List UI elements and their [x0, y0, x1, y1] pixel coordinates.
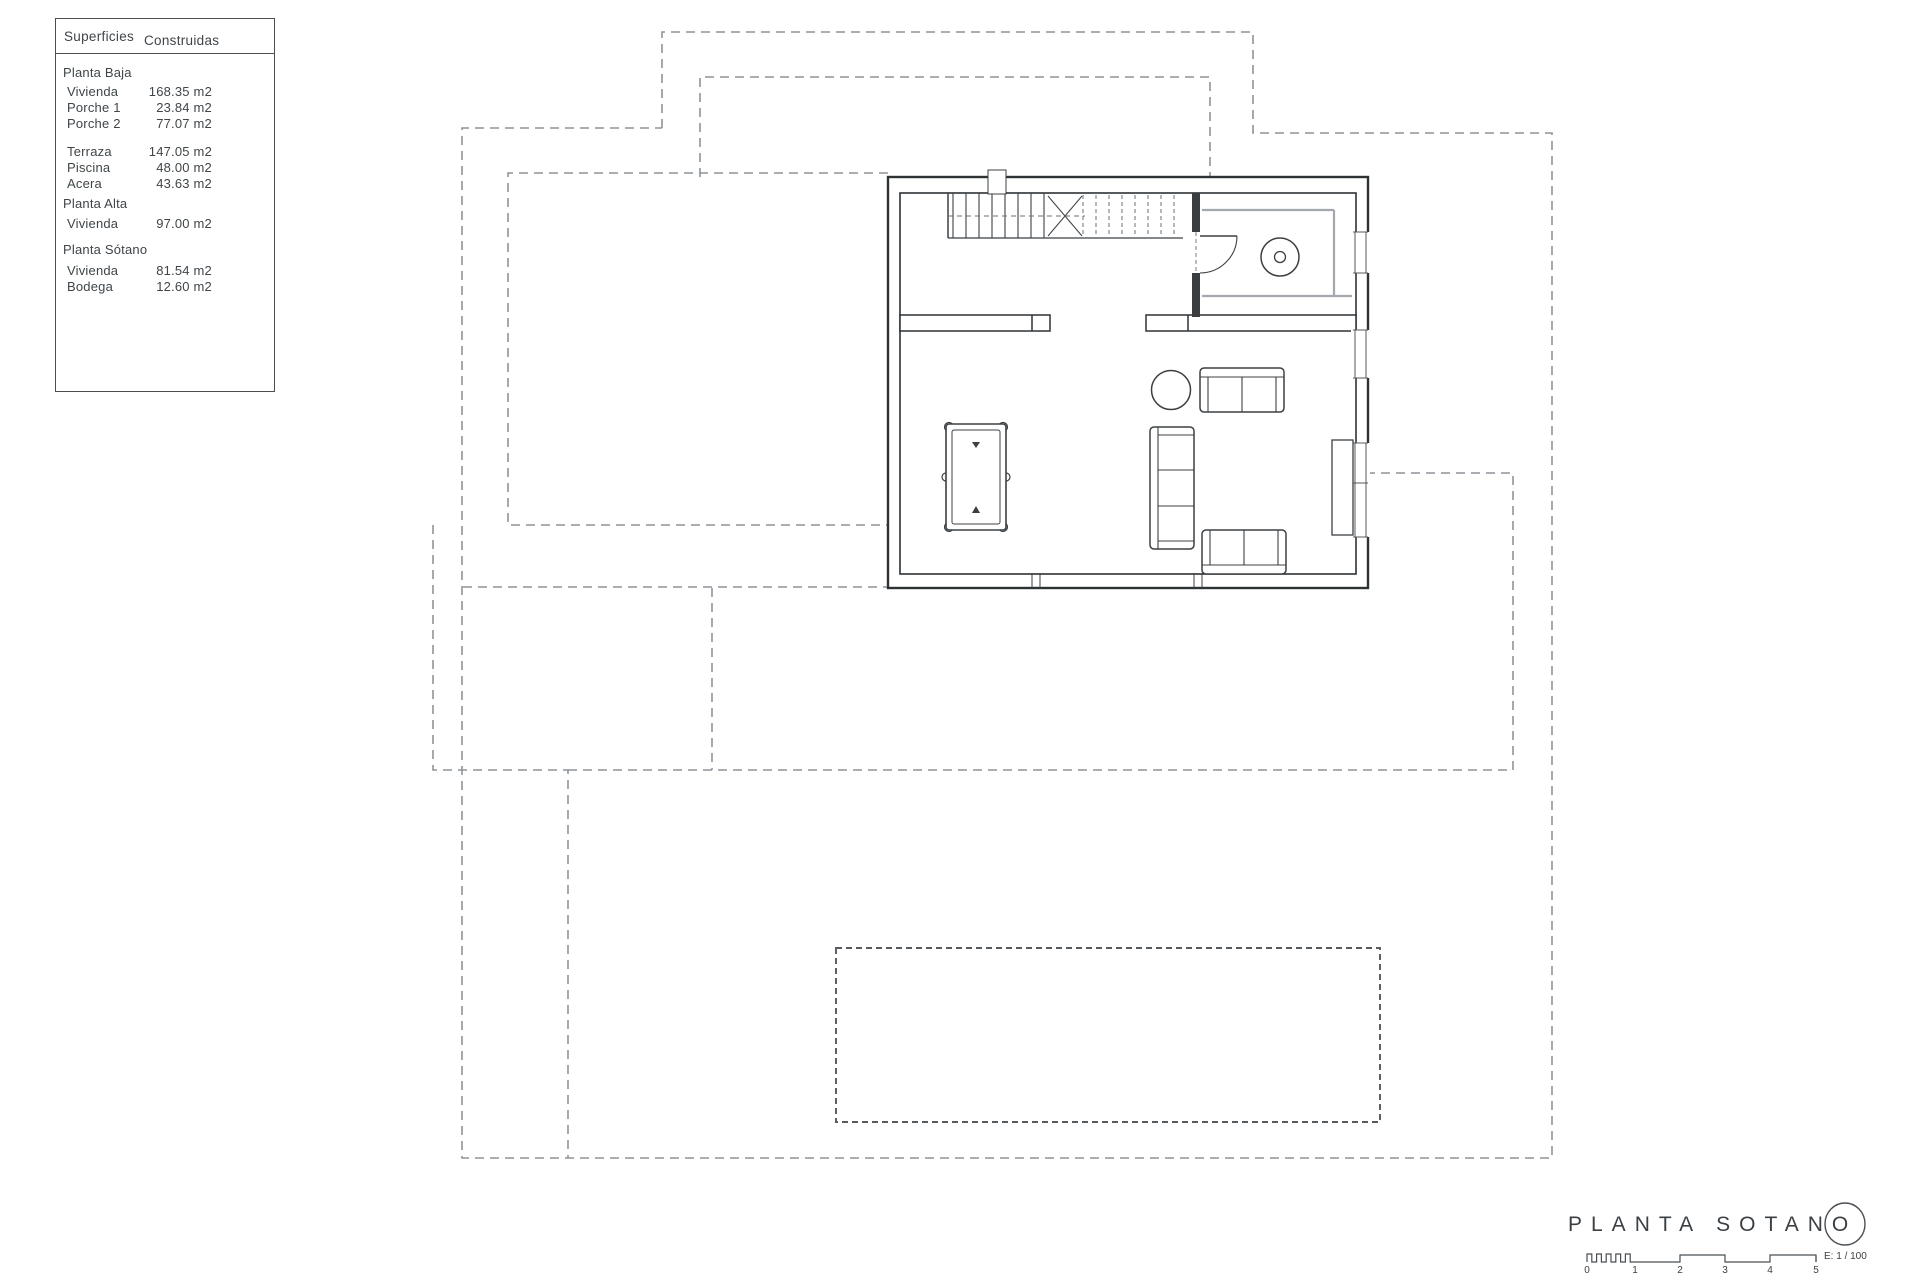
sofa-bottom [1202, 530, 1286, 574]
page-title: PLANTASOTANO [1568, 1213, 1857, 1237]
surfaces-table-header: Superficies Construidas [56, 27, 274, 53]
pool-outline-dashed [836, 948, 1380, 1122]
surfaces-table: Superficies Construidas Planta Baja Vivi… [55, 18, 275, 392]
header-divider [56, 53, 274, 54]
scale-tick: 0 [1581, 1265, 1593, 1276]
floorplan-drawing [0, 0, 1920, 1280]
wall-ledge [1332, 440, 1353, 535]
scale-ratio-label: E: 1 / 100 [1824, 1251, 1867, 1262]
scale-tick: 5 [1810, 1265, 1822, 1276]
surfaces-col2-header: Construidas [144, 33, 219, 48]
sofa-top [1200, 368, 1284, 412]
pool-table [942, 423, 1010, 532]
table-row: Porche 2 77.07 m2 [56, 116, 274, 132]
title-block: PLANTASOTANO 0 1 2 3 4 5 E: 1 / 100 [1540, 1205, 1900, 1275]
scale-tick: 4 [1764, 1265, 1776, 1276]
table-row: Vivienda 81.54 m2 [56, 263, 274, 279]
table-row: Vivienda 168.35 m2 [56, 84, 274, 100]
coffee-table [1152, 371, 1191, 410]
sofa-left [1150, 427, 1194, 549]
washing-machine-icon [1261, 238, 1299, 276]
table-row: Bodega 12.60 m2 [56, 279, 274, 295]
table-row: Acera 43.63 m2 [56, 176, 274, 192]
table-row: Porche 1 23.84 m2 [56, 100, 274, 116]
table-row: Piscina 48.00 m2 [56, 160, 274, 176]
scale-tick: 1 [1629, 1265, 1641, 1276]
table-row: Terraza 147.05 m2 [56, 144, 274, 160]
scale-tick: 3 [1719, 1265, 1731, 1276]
scale-tick: 2 [1674, 1265, 1686, 1276]
floorplan-page: Superficies Construidas Planta Baja Vivi… [0, 0, 1920, 1280]
table-row: Vivienda 97.00 m2 [56, 216, 274, 232]
table-row: Planta Sótano [56, 242, 274, 258]
table-row: Planta Baja [56, 65, 274, 81]
surfaces-col1-header: Superficies [64, 29, 134, 44]
table-row: Planta Alta [56, 196, 274, 212]
